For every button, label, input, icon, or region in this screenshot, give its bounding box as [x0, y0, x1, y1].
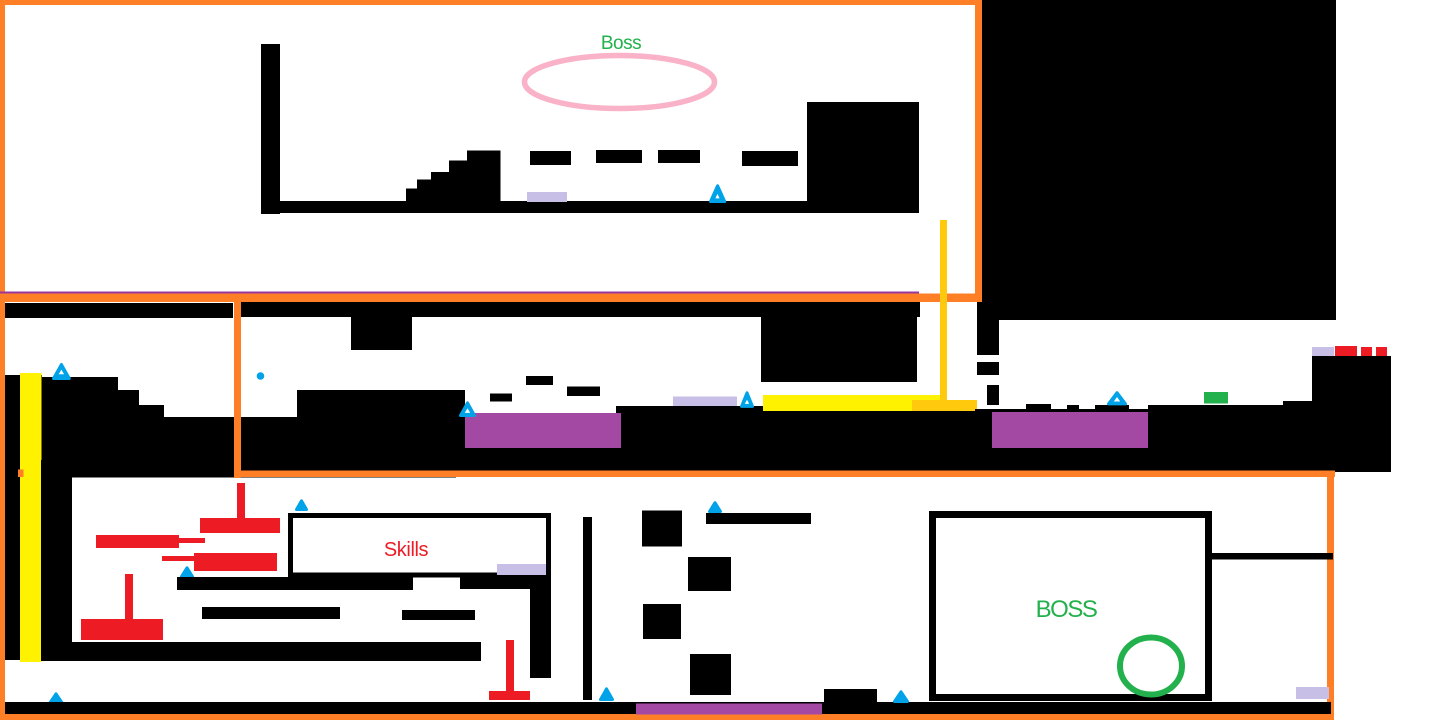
svg-text:BOSS: BOSS [1036, 596, 1097, 623]
svg-text:Skills: Skills [384, 539, 429, 561]
svg-text:Boss: Boss [601, 33, 641, 54]
